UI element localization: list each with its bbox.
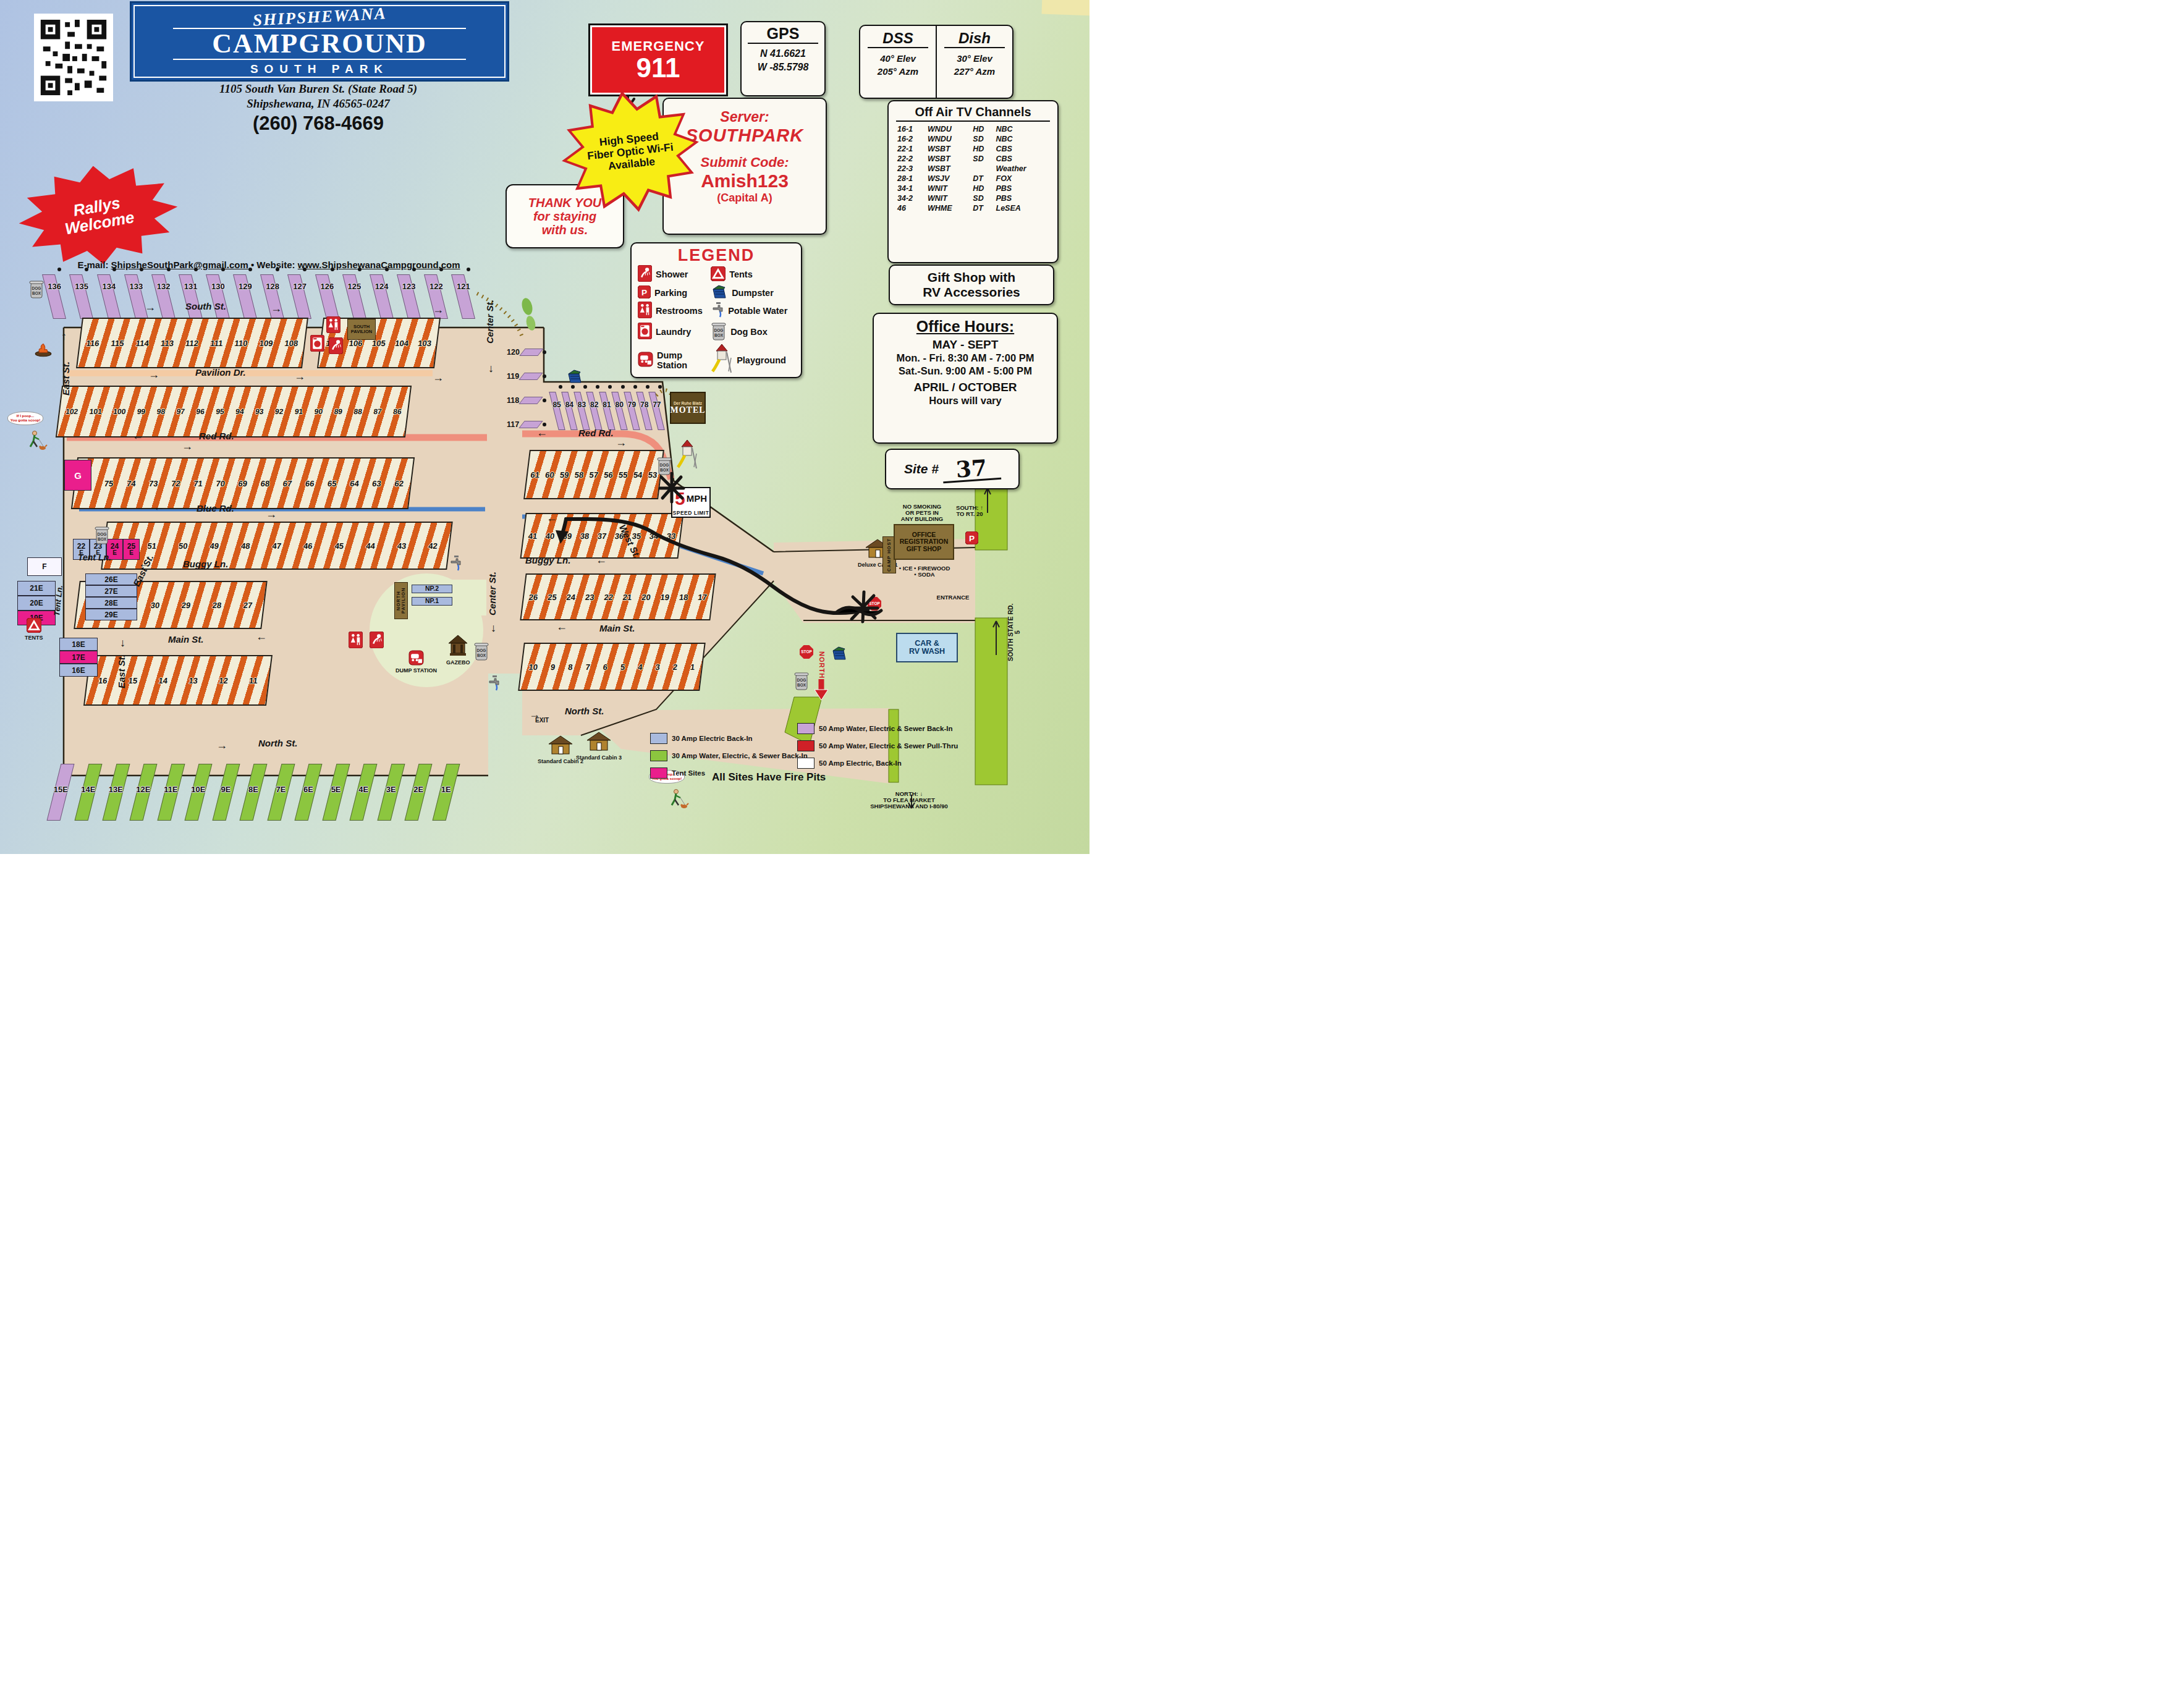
site-cell-suffix: E xyxy=(112,550,117,556)
icon-campfire-icon xyxy=(33,342,53,359)
site-number: 1E xyxy=(441,785,451,821)
site-number: 133 xyxy=(130,282,143,319)
site-number: 67 xyxy=(282,479,292,488)
site-number: 49 xyxy=(209,541,219,551)
site-strip: 10E xyxy=(185,764,213,821)
sign-carwash: CAR &RV WASH xyxy=(896,633,958,662)
row-52-42: 5251504948474645444342 xyxy=(101,522,453,570)
site-cell-number: 20E xyxy=(30,599,43,607)
site-number: 118 xyxy=(507,396,519,405)
site-strip: 79 xyxy=(625,392,638,430)
site-number: 99 xyxy=(137,407,146,416)
site-type-swatch xyxy=(650,733,667,744)
site-strip: 121 xyxy=(450,274,477,319)
icon-dogbox-icon: DOGBOX xyxy=(94,524,110,547)
site-type-label: 50 Amp Water, Electric & Sewer Pull-Thru xyxy=(819,742,958,750)
map-label: → xyxy=(182,440,193,453)
map-label: East St. xyxy=(61,361,71,395)
laundry-icon xyxy=(310,335,324,353)
svg-text:P: P xyxy=(969,534,975,543)
site-number: 27 xyxy=(243,601,253,610)
site-number: 131 xyxy=(184,282,198,319)
sign-line: Der Ruhe Blatz xyxy=(674,401,702,405)
site-number: 74 xyxy=(126,479,136,488)
map-label: ↓ xyxy=(488,362,494,375)
site-cell: 28E xyxy=(85,597,137,609)
col-120-117: 120119118117 xyxy=(507,340,546,436)
sign-line: REGISTRATION xyxy=(900,538,949,545)
site-dot xyxy=(412,268,416,271)
site-dot xyxy=(194,268,198,271)
site-cell: F xyxy=(27,557,62,576)
site-number: 88 xyxy=(353,407,363,416)
site-number: 6E xyxy=(303,785,313,821)
row-16-11: 161514131211 xyxy=(83,655,273,706)
icon-caption: TENTS xyxy=(25,635,43,641)
site-number: 42 xyxy=(428,541,438,551)
site-number: 85 xyxy=(552,400,561,430)
site-number: 60 xyxy=(544,470,554,480)
site-G: G xyxy=(64,460,91,491)
site-number: 44 xyxy=(365,541,375,551)
svg-text:DOG: DOG xyxy=(477,648,486,653)
sign-line: MOTEL xyxy=(670,405,705,415)
site-cell-number: 18E xyxy=(72,641,85,648)
site-number: 13 xyxy=(188,676,198,685)
faucet-icon xyxy=(487,675,501,693)
svg-text:BOX: BOX xyxy=(477,653,486,657)
site-dot xyxy=(167,268,171,271)
site-number: 130 xyxy=(211,282,225,319)
map-label: ← xyxy=(556,620,567,633)
site-number: 62 xyxy=(394,479,404,488)
site-number: 127 xyxy=(293,282,307,319)
site-strip: 7E xyxy=(267,764,295,821)
site-number: 125 xyxy=(348,282,362,319)
site-cell-number: 26E xyxy=(104,576,117,583)
site-number: 66 xyxy=(305,479,315,488)
site-number: 37 xyxy=(597,531,607,541)
site-number: 59 xyxy=(559,470,569,480)
map-label: Main St. xyxy=(599,623,635,633)
site-number: 33 xyxy=(666,531,676,541)
house-icon xyxy=(586,732,612,755)
site-strip: 135 xyxy=(68,274,95,319)
icon-shower-icon xyxy=(329,337,343,356)
site-type-label: 30 Amp Electric Back-In xyxy=(672,735,753,742)
icon-bush-icon xyxy=(520,297,538,334)
map-label: Tent Ln. xyxy=(78,552,111,562)
icon-tenttile-icon: TENTS xyxy=(25,618,43,641)
site-number: 115 xyxy=(111,339,125,348)
site-dot xyxy=(559,385,562,389)
site-bar xyxy=(518,373,543,380)
site-number: 10E xyxy=(191,785,205,821)
sign-line: STOP xyxy=(801,649,812,654)
site-number: 10 xyxy=(528,662,538,672)
site-number: 7 xyxy=(585,662,591,672)
site-strip: 81 xyxy=(601,392,613,430)
tents-26-29: 26E27E28E29E xyxy=(85,573,137,620)
icon-dogwalker-icon: If I poop...You gotta scoop! xyxy=(21,428,47,457)
site-number: 71 xyxy=(193,479,203,488)
icon-shower-icon xyxy=(370,632,384,650)
sign-line: PAVILION xyxy=(351,329,372,334)
site-number: 55 xyxy=(618,470,628,480)
svg-text:DOG: DOG xyxy=(660,463,669,467)
site-number: 58 xyxy=(574,470,584,480)
site-number: 6 xyxy=(603,662,608,672)
site-strip: 124 xyxy=(368,274,396,319)
site-strip: 3E xyxy=(377,764,405,821)
site-strip: 125 xyxy=(341,274,368,319)
sign-office: OFFICEREGISTRATIONGIFT SHOP xyxy=(894,524,954,560)
row-136-121: 1361351341331321311301291281271261251241… xyxy=(41,274,477,319)
row-26-17: 26252423222120191817 xyxy=(520,573,716,620)
icon-dumpstation-icon: DUMP STATION xyxy=(396,650,437,674)
site-dot xyxy=(57,268,61,271)
row-85-77: 858483828180797877 xyxy=(551,392,663,430)
map-label: ← xyxy=(153,501,164,514)
site-number: 65 xyxy=(327,479,337,488)
map-label: East St. xyxy=(116,654,127,688)
map-label: → xyxy=(216,739,227,752)
site-strip: 127 xyxy=(286,274,313,319)
svg-text:BOX: BOX xyxy=(32,291,41,295)
site-dot xyxy=(467,268,470,271)
icon-restroom-icon xyxy=(326,316,341,335)
map-label: North St. xyxy=(565,706,604,716)
site-number: 4E xyxy=(358,785,368,821)
sign-line: SOUTH STATE RD. 5 xyxy=(1007,603,1022,661)
row-61-53: 616059585756555453 xyxy=(523,450,664,499)
site-cell: G xyxy=(64,460,91,491)
site-strip: 78 xyxy=(638,392,651,430)
sign-line: GIFT SHOP xyxy=(907,546,942,552)
site-type-label: Tent Sites xyxy=(672,769,705,777)
site-number: 84 xyxy=(565,400,573,430)
map-label: Red Rd. xyxy=(578,428,614,438)
site-number: 80 xyxy=(616,400,624,430)
icon-dogwalker-icon: If I poop...You gotta scoop! xyxy=(662,786,688,815)
site-number: 134 xyxy=(102,282,116,319)
site-strip: 2E xyxy=(405,764,433,821)
dumpstation-icon xyxy=(408,650,424,667)
sign-line: RV WASH xyxy=(909,648,945,656)
site-number: 101 xyxy=(89,407,103,416)
site-strip: 131 xyxy=(177,274,205,319)
map-label: ↓ xyxy=(120,636,125,649)
site-number: 57 xyxy=(589,470,599,480)
site-strip: 6E xyxy=(295,764,323,821)
icon-gazebo-icon: GAZEBO xyxy=(446,634,470,666)
site-cell-number: G xyxy=(74,471,82,480)
site-dot xyxy=(276,268,279,271)
dogbox-icon: DOGBOX xyxy=(28,278,44,301)
site-number: 47 xyxy=(272,541,282,551)
site-cell-number: 27E xyxy=(104,588,117,595)
site-cell-number: 21E xyxy=(30,585,43,592)
icon-faucet-icon xyxy=(487,675,501,693)
sign-line: STOP xyxy=(869,601,880,606)
sign-np: NP.1 xyxy=(412,597,452,606)
dogbox-icon: DOGBOX xyxy=(793,670,810,693)
site-strip: 123 xyxy=(396,274,423,319)
site-cell: 17E xyxy=(59,651,98,664)
site-number: 30 xyxy=(150,601,160,610)
site-number: 126 xyxy=(320,282,334,319)
site-type-swatch xyxy=(797,723,814,734)
row-102-86: 1021011009998979695949392919089888786 xyxy=(56,386,412,438)
site-number: 70 xyxy=(216,479,226,488)
site-strip: 1E xyxy=(432,764,460,821)
site-number: 135 xyxy=(75,282,88,319)
site-number: 98 xyxy=(156,407,166,416)
svg-text:DOG: DOG xyxy=(32,286,41,290)
site-number: 2E xyxy=(413,785,423,821)
site-dot xyxy=(621,385,625,389)
map-label: Center St. xyxy=(487,572,497,615)
site-number: 40 xyxy=(545,531,555,541)
site-number: 96 xyxy=(196,407,205,416)
site-number: 20 xyxy=(641,593,651,602)
site-number: 89 xyxy=(334,407,343,416)
site-number: 8E xyxy=(248,785,258,821)
site-dot xyxy=(543,399,546,402)
site-type-swatch xyxy=(650,767,667,779)
row-116-108: 116115114113112111110109108 xyxy=(76,318,308,368)
site-number: 112 xyxy=(185,339,199,348)
site-number: 15 xyxy=(128,676,138,685)
site-number: 45 xyxy=(334,541,344,551)
icon-laundry-icon xyxy=(310,335,324,353)
sign-plain: ENTRANCE xyxy=(931,593,975,602)
map-label: → xyxy=(294,370,305,383)
site-number: 109 xyxy=(259,339,274,348)
site-dot xyxy=(140,268,143,271)
bush-icon xyxy=(520,297,538,334)
sign-plain: • ICE • FIREWOOD• SODA xyxy=(892,564,957,580)
site-cell-number: 16E xyxy=(72,667,85,674)
site-type-item: Tent Sites xyxy=(650,767,705,779)
site-number: 77 xyxy=(653,400,661,430)
site-dot xyxy=(85,268,88,271)
sign-line: • SODA xyxy=(914,572,934,578)
row-15E-1E: 15E14E13E12E11E10E9E8E7E6E5E4E3E2E1E xyxy=(47,764,460,821)
site-number: 121 xyxy=(457,282,470,319)
site-number: 5 xyxy=(620,662,625,672)
site-number: 11 xyxy=(248,676,258,685)
site-number: 21 xyxy=(622,593,632,602)
sign-line: NORTH PAVILION xyxy=(396,583,406,619)
sign-5mph: 5MPHSPEED LIMIT xyxy=(671,487,711,518)
site-number: 43 xyxy=(397,541,407,551)
site-number: 108 xyxy=(284,339,299,348)
tents-18-16: 18E17E16E xyxy=(59,638,98,677)
site-number: 22 xyxy=(604,593,614,602)
site-strip: 11E xyxy=(157,764,185,821)
map-label: Buggy Ln. xyxy=(525,555,570,565)
site-type-item: 50 Amp Water, Electric & Sewer Pull-Thru xyxy=(797,740,958,751)
sign-plain: SOUTH: ↑TO RT. 20 xyxy=(949,503,990,519)
site-strip: 13E xyxy=(102,764,130,821)
site-number: 132 xyxy=(157,282,171,319)
site-number: 119 xyxy=(507,372,519,381)
icon-house-icon: Standard Cabin 3 xyxy=(576,732,622,761)
tenttile-icon xyxy=(27,618,41,635)
site-cell: 27E xyxy=(85,585,137,597)
site-bar xyxy=(518,397,543,404)
site-number: 63 xyxy=(372,479,382,488)
site-number: 68 xyxy=(260,479,270,488)
map-label: ← xyxy=(132,429,143,442)
map-label: ↓ xyxy=(491,622,496,635)
site-cell: 29E xyxy=(85,609,137,620)
site-number: 5E xyxy=(331,785,341,821)
icon-caption: DUMP STATION xyxy=(396,668,437,674)
site-number: 3E xyxy=(386,785,396,821)
site-number: 17 xyxy=(698,593,708,602)
row-41-33: 414039383736353433 xyxy=(520,513,683,559)
sign-np: NP.2 xyxy=(412,585,452,593)
map-label: South St. xyxy=(185,301,226,311)
site-number: 14 xyxy=(158,676,168,685)
site-strip: 8E xyxy=(240,764,268,821)
site-type-label: 30 Amp Water, Electric, & Sewer Back-In xyxy=(672,752,808,759)
fire-pits-note: All Sites Have Fire Pits xyxy=(712,771,826,784)
site-number: 92 xyxy=(274,407,284,416)
site-number: 87 xyxy=(373,407,383,416)
site-strip: 14E xyxy=(75,764,103,821)
site-F: F xyxy=(27,557,62,576)
map-label: Main St. xyxy=(168,634,204,645)
site-cell: 25E xyxy=(123,539,140,560)
map-label: → xyxy=(616,436,627,449)
north-direction-label: NORTH xyxy=(818,651,825,679)
site-number: 78 xyxy=(640,400,648,430)
sign-line: SHIPSHEWANA AND I-80/90 xyxy=(870,803,947,810)
icon-dogbox-icon: DOGBOX xyxy=(473,640,489,663)
site-cell-suffix: E xyxy=(129,550,133,556)
site-dot xyxy=(608,385,612,389)
submit-code-note: (Capital A) xyxy=(664,192,826,205)
sign-brown: SOUTHPAVILION xyxy=(347,319,376,340)
site-number: 54 xyxy=(633,470,643,480)
site-number: 69 xyxy=(238,479,248,488)
site-number: 111 xyxy=(209,339,223,348)
site-number: 86 xyxy=(392,407,402,416)
site-type-item: 50 Amp Water, Electric & Sewer Back-In xyxy=(797,723,952,734)
site-dot xyxy=(543,374,546,378)
svg-text:DOG: DOG xyxy=(797,678,806,682)
site-number: 114 xyxy=(135,339,150,348)
site-type-item: 50 Amp Electric, Back-In xyxy=(797,758,902,769)
site-cell: 20E xyxy=(17,596,56,611)
map-label: → xyxy=(433,371,444,384)
icon-dogbox-icon: DOGBOX xyxy=(28,278,44,301)
site-strip: 83 xyxy=(575,392,588,430)
site-number: 34 xyxy=(649,531,659,541)
dogbox-icon: DOGBOX xyxy=(94,524,110,547)
site-cell: 16E xyxy=(59,664,98,677)
site-dot xyxy=(596,385,599,389)
site-number: 9E xyxy=(221,785,231,821)
icon-caption: Standard Cabin 3 xyxy=(576,755,622,761)
icon-dogbox-icon: DOGBOX xyxy=(793,670,810,693)
map-label: Red Rd. xyxy=(199,431,234,441)
site-type-label: 50 Amp Water, Electric & Sewer Back-In xyxy=(819,725,952,732)
map-label: North St. xyxy=(258,738,297,748)
icon-northarrow-icon: NORTH xyxy=(814,651,828,703)
site-strip: 84 xyxy=(563,392,575,430)
site-number: 64 xyxy=(349,479,359,488)
icon-dumpster-icon xyxy=(831,645,848,663)
map-label: ← xyxy=(256,630,267,643)
site-strip: 129 xyxy=(232,274,259,319)
site-number: 48 xyxy=(240,541,250,551)
site-strip: 5E xyxy=(322,764,350,821)
site-type-item: 30 Amp Water, Electric, & Sewer Back-In xyxy=(650,750,808,761)
site-cell-number: F xyxy=(42,563,46,570)
site-number: 7E xyxy=(276,785,286,821)
sign-line: ANY BUILDING xyxy=(901,516,943,522)
map-label: → xyxy=(433,303,444,316)
site-strip: 118 xyxy=(507,388,546,412)
map-label: → xyxy=(266,508,277,521)
site-cell: 26E xyxy=(85,573,137,585)
gazebo-icon xyxy=(447,634,468,659)
site-number: 56 xyxy=(604,470,614,480)
site-cell-number: 17E xyxy=(72,654,85,661)
site-strip: 12E xyxy=(130,764,158,821)
sign-plain: NORTH: ↓TO FLEA MARKETSHIPSHEWANA AND I-… xyxy=(860,787,958,813)
site-number: 117 xyxy=(507,420,519,429)
site-dot xyxy=(633,385,637,389)
site-dot xyxy=(248,268,252,271)
map-label: → xyxy=(145,301,156,314)
site-cell: 18E xyxy=(59,638,98,651)
site-number: 120 xyxy=(507,348,520,357)
site-number: 116 xyxy=(86,339,100,348)
dumpster-icon xyxy=(566,368,583,386)
site-number: 113 xyxy=(160,339,174,348)
sign-line: MPH xyxy=(687,494,707,504)
site-number: 90 xyxy=(314,407,323,416)
dogwalker-icon xyxy=(21,428,47,457)
site-number: 26 xyxy=(528,593,538,602)
sign-line: NP.2 xyxy=(425,585,439,592)
site-type-label: 50 Amp Electric, Back-In xyxy=(819,759,902,767)
site-number: 41 xyxy=(528,531,538,541)
dogbox-icon: DOGBOX xyxy=(473,640,489,663)
site-number: 16 xyxy=(98,676,108,685)
map-label: Buggy Ln. xyxy=(183,559,228,569)
site-number: 100 xyxy=(112,407,126,416)
site-type-swatch xyxy=(650,750,667,761)
sign-vroad: SOUTH STATE RD. 5 xyxy=(1009,603,1020,661)
site-strip: 120 xyxy=(507,340,546,364)
house-icon xyxy=(548,735,573,758)
site-dot xyxy=(358,268,362,271)
map-label: ↑ xyxy=(61,330,67,343)
site-number: 83 xyxy=(578,400,586,430)
site-number: 93 xyxy=(255,407,264,416)
sign-plain: NO SMOKINGOR PETS INANY BUILDING xyxy=(892,502,952,524)
site-strip: 9E xyxy=(212,764,240,821)
dumpster-icon xyxy=(831,645,848,663)
icon-playground-icon xyxy=(676,439,698,473)
site-dot xyxy=(303,268,307,271)
